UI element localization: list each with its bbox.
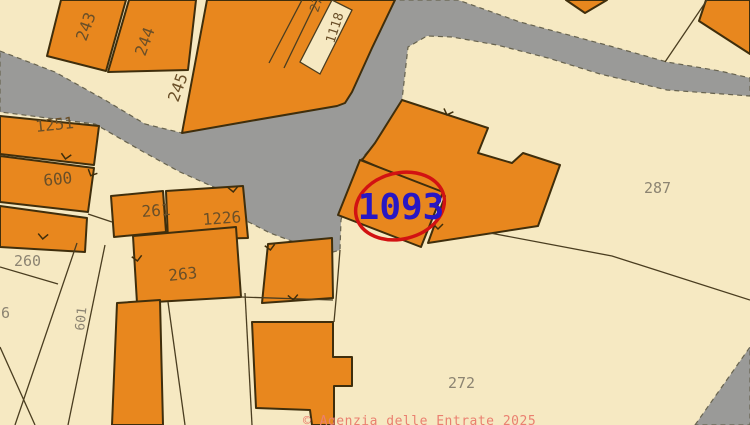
map-svg: 2432442452712111812516002611226263260660… bbox=[0, 0, 750, 425]
cadastral-map[interactable]: 2432442452712111812516002611226263260660… bbox=[0, 0, 750, 425]
parcel-label-6: 6 bbox=[1, 304, 10, 322]
parcel-label-272: 272 bbox=[448, 374, 475, 392]
parcel-label-600: 600 bbox=[42, 168, 73, 190]
highlighted-parcel-number: 1093 bbox=[358, 187, 445, 228]
parcel-label-601: 601 bbox=[73, 306, 90, 331]
parcel-label-287: 287 bbox=[644, 179, 671, 197]
parcel-label-1226: 1226 bbox=[202, 207, 242, 229]
building-tall-left[interactable] bbox=[112, 300, 163, 425]
parcel-label-260: 260 bbox=[14, 252, 41, 270]
parcel-label-1251: 1251 bbox=[34, 113, 74, 136]
parcel-label-261: 261 bbox=[141, 200, 171, 221]
parcel-label-263: 263 bbox=[167, 263, 198, 285]
